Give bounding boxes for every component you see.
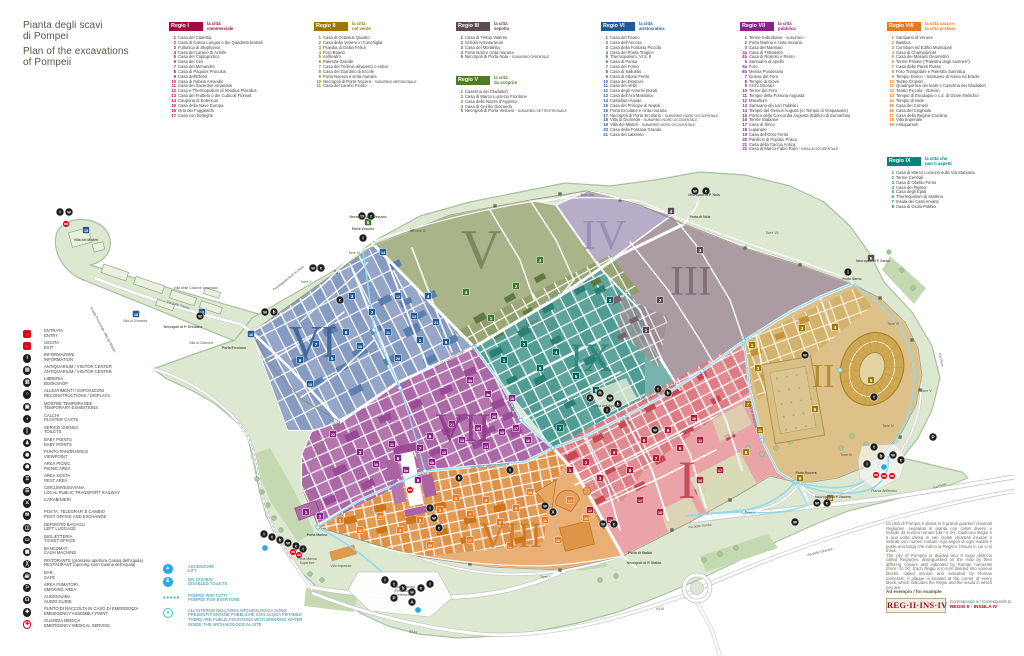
svg-text:Torre IX: Torre IX (414, 229, 427, 233)
svg-text:6: 6 (814, 407, 817, 412)
svg-text:6b: 6b (430, 460, 435, 465)
svg-text:I: I (678, 450, 696, 510)
svg-text:i: i (362, 236, 363, 241)
svg-text:c: c (900, 458, 903, 463)
svg-text:i: i (866, 462, 867, 467)
svg-text:VII: VII (435, 405, 491, 450)
svg-text:w: w (890, 453, 895, 458)
svg-text:8: 8 (429, 434, 432, 439)
svg-text:20: 20 (396, 356, 400, 361)
svg-text:7: 7 (469, 512, 472, 517)
svg-text:10: 10 (692, 416, 696, 421)
svg-text:Villa di Cicerone: Villa di Cicerone (189, 341, 214, 345)
svg-text:Villa dei Misteri: Villa dei Misteri (74, 238, 99, 242)
svg-text:3: 3 (599, 476, 602, 481)
svg-text:Necropoli di P. Stabia: Necropoli di P. Stabia (627, 561, 662, 565)
svg-text:4: 4 (399, 528, 402, 533)
svg-text:w: w (310, 266, 315, 271)
svg-text:SS18: SS18 (656, 607, 665, 612)
svg-text:II: II (812, 358, 835, 395)
svg-text:Necropoli di P. Ercolano: Necropoli di P. Ercolano (164, 325, 203, 329)
svg-text:Casina dell'Aquila: Casina dell'Aquila (591, 404, 618, 408)
svg-text:4b: 4b (468, 378, 473, 383)
svg-text:Via Plinio: Via Plinio (938, 352, 945, 367)
svg-text:c: c (339, 298, 342, 303)
svg-text:4: 4 (427, 294, 430, 299)
svg-text:Villa di Diomede: Villa di Diomede (123, 319, 148, 323)
svg-text:5: 5 (629, 468, 632, 473)
svg-text:10: 10 (358, 344, 362, 349)
svg-text:1: 1 (751, 343, 754, 348)
svg-text:3: 3 (359, 450, 362, 455)
svg-text:Torre V: Torre V (921, 389, 933, 393)
svg-text:Porta di Stabia: Porta di Stabia (628, 551, 652, 555)
svg-text:1: 1 (419, 338, 422, 343)
svg-text:4: 4 (555, 350, 558, 355)
svg-text:7: 7 (559, 426, 562, 431)
svg-text:IX: IX (570, 335, 612, 380)
svg-text:4: 4 (834, 325, 837, 330)
svg-text:9: 9 (417, 478, 420, 483)
svg-text:Porta di Nola: Porta di Nola (690, 215, 711, 219)
svg-text:Necropoli di P. Nocera: Necropoli di P. Nocera (815, 495, 851, 499)
svg-text:Necropoli di P. Vesuvio: Necropoli di P. Vesuvio (349, 215, 386, 219)
svg-text:P: P (931, 435, 934, 440)
svg-text:V: V (461, 219, 501, 281)
svg-text:i: i (302, 547, 303, 552)
svg-text:SS18: SS18 (409, 630, 418, 635)
svg-text:Torre VII: Torre VII (766, 231, 779, 235)
svg-text:inferiore): inferiore) (397, 593, 410, 597)
svg-text:Torre II: Torre II (745, 511, 756, 515)
svg-text:Torre IV: Torre IV (882, 424, 895, 428)
svg-text:3: 3 (419, 518, 422, 523)
svg-text:5: 5 (397, 456, 400, 461)
svg-text:Torre XI: Torre XI (348, 251, 360, 255)
svg-text:17: 17 (514, 426, 518, 431)
svg-text:i: i (429, 506, 430, 511)
svg-text:VIII: VIII (480, 515, 542, 555)
svg-text:Porta Sarno: Porta Sarno (842, 277, 861, 281)
svg-text:i: i (263, 532, 264, 537)
svg-text:3: 3 (609, 298, 612, 303)
svg-text:3: 3 (801, 326, 804, 331)
svg-text:Villa delle Colonne a mosaico: Villa delle Colonne a mosaico (174, 286, 219, 290)
svg-text:P: P (392, 596, 395, 601)
svg-text:1: 1 (645, 328, 648, 333)
svg-text:4: 4 (465, 290, 468, 295)
svg-text:6: 6 (485, 498, 488, 503)
svg-text:Piazza Anfiteatro: Piazza Anfiteatro (871, 489, 897, 493)
svg-text:1: 1 (305, 510, 308, 515)
svg-text:5: 5 (367, 220, 370, 225)
svg-text:w: w (814, 501, 819, 506)
svg-text:c: c (295, 544, 298, 549)
svg-text:Torre VI: Torre VI (887, 322, 899, 326)
svg-text:w: w (542, 504, 547, 509)
svg-text:2: 2 (371, 310, 374, 315)
svg-text:w: w (431, 516, 436, 521)
svg-text:8: 8 (345, 330, 348, 335)
svg-text:7: 7 (419, 446, 422, 451)
svg-text:2: 2 (319, 514, 322, 519)
svg-text:2: 2 (515, 284, 518, 289)
svg-text:Villa Imperiale: Villa Imperiale (330, 564, 351, 568)
svg-text:8: 8 (539, 366, 542, 371)
svg-text:7: 7 (655, 456, 658, 461)
svg-text:w: w (792, 520, 797, 525)
svg-text:10: 10 (584, 516, 588, 521)
svg-text:3: 3 (351, 294, 354, 299)
svg-text:IV: IV (582, 213, 626, 259)
svg-text:Torre X: Torre X (301, 280, 313, 284)
svg-text:w: w (652, 428, 657, 433)
svg-text:Torre I: Torre I (540, 575, 550, 579)
svg-text:Superiore: Superiore (300, 561, 315, 565)
svg-text:w: w (285, 541, 290, 546)
svg-text:1: 1 (490, 316, 493, 321)
svg-text:9: 9 (515, 506, 518, 511)
svg-text:Porta Marina: Porta Marina (307, 533, 328, 537)
svg-text:Necropoli di P. Sarno: Necropoli di P. Sarno (856, 259, 890, 263)
svg-text:b: b (880, 454, 883, 459)
svg-text:Porta Vesuvio: Porta Vesuvio (352, 227, 374, 231)
svg-text:20: 20 (492, 414, 496, 419)
svg-text:2: 2 (585, 460, 588, 465)
svg-text:17: 17 (718, 468, 722, 473)
svg-text:9: 9 (799, 476, 802, 481)
svg-text:w: w (802, 353, 807, 358)
svg-text:c: c (613, 522, 616, 527)
svg-text:1: 1 (569, 468, 572, 473)
svg-text:2: 2 (523, 342, 526, 347)
svg-text:2: 2 (439, 508, 442, 513)
svg-text:Torre III: Torre III (840, 453, 852, 457)
svg-text:b: b (667, 391, 670, 396)
svg-text:6: 6 (643, 438, 646, 443)
svg-text:w: w (262, 310, 267, 315)
svg-text:c: c (320, 266, 323, 271)
svg-text:b: b (279, 538, 282, 543)
svg-text:Via delle Ginestre: Via delle Ginestre (806, 547, 833, 557)
svg-text:b: b (273, 310, 276, 315)
svg-text:c: c (420, 586, 423, 591)
svg-text:w: w (607, 396, 612, 401)
svg-text:1: 1 (503, 358, 506, 363)
svg-text:5: 5 (870, 378, 873, 383)
svg-text:2: 2 (757, 366, 760, 371)
svg-text:5: 5 (455, 496, 458, 501)
svg-text:8: 8 (745, 450, 748, 455)
svg-text:i: i (429, 582, 430, 587)
svg-text:Porta Ercolano: Porta Ercolano (222, 346, 246, 350)
svg-text:8: 8 (667, 428, 670, 433)
svg-text:3: 3 (699, 248, 702, 253)
svg-text:i: i (384, 578, 385, 583)
svg-text:Torre VIII: Torre VIII (580, 193, 594, 197)
svg-text:9: 9 (445, 340, 448, 345)
svg-text:17: 17 (468, 538, 472, 543)
svg-text:Necropoli di P. Nola: Necropoli di P. Nola (688, 193, 720, 197)
svg-text:1: 1 (339, 518, 342, 523)
svg-text:w: w (197, 314, 202, 319)
svg-text:b: b (458, 476, 461, 481)
svg-text:10: 10 (374, 462, 378, 467)
svg-text:4: 4 (670, 209, 673, 214)
svg-text:4: 4 (613, 450, 616, 455)
svg-text:Porta Nocera: Porta Nocera (795, 471, 816, 475)
svg-text:c: c (826, 501, 829, 506)
svg-text:VI: VI (289, 317, 336, 367)
svg-text:w: w (66, 210, 71, 215)
svg-text:2: 2 (659, 298, 662, 303)
svg-text:Strada Provinciale Villa dei M: Strada Provinciale Villa dei Misteri (89, 306, 117, 353)
svg-text:i: i (847, 270, 848, 275)
svg-text:i: i (59, 210, 60, 215)
svg-text:3: 3 (539, 258, 542, 263)
svg-text:Passeggiata fuori le mura: Passeggiata fuori le mura (272, 265, 305, 292)
svg-text:i: i (606, 408, 607, 413)
svg-text:III: III (670, 259, 712, 305)
